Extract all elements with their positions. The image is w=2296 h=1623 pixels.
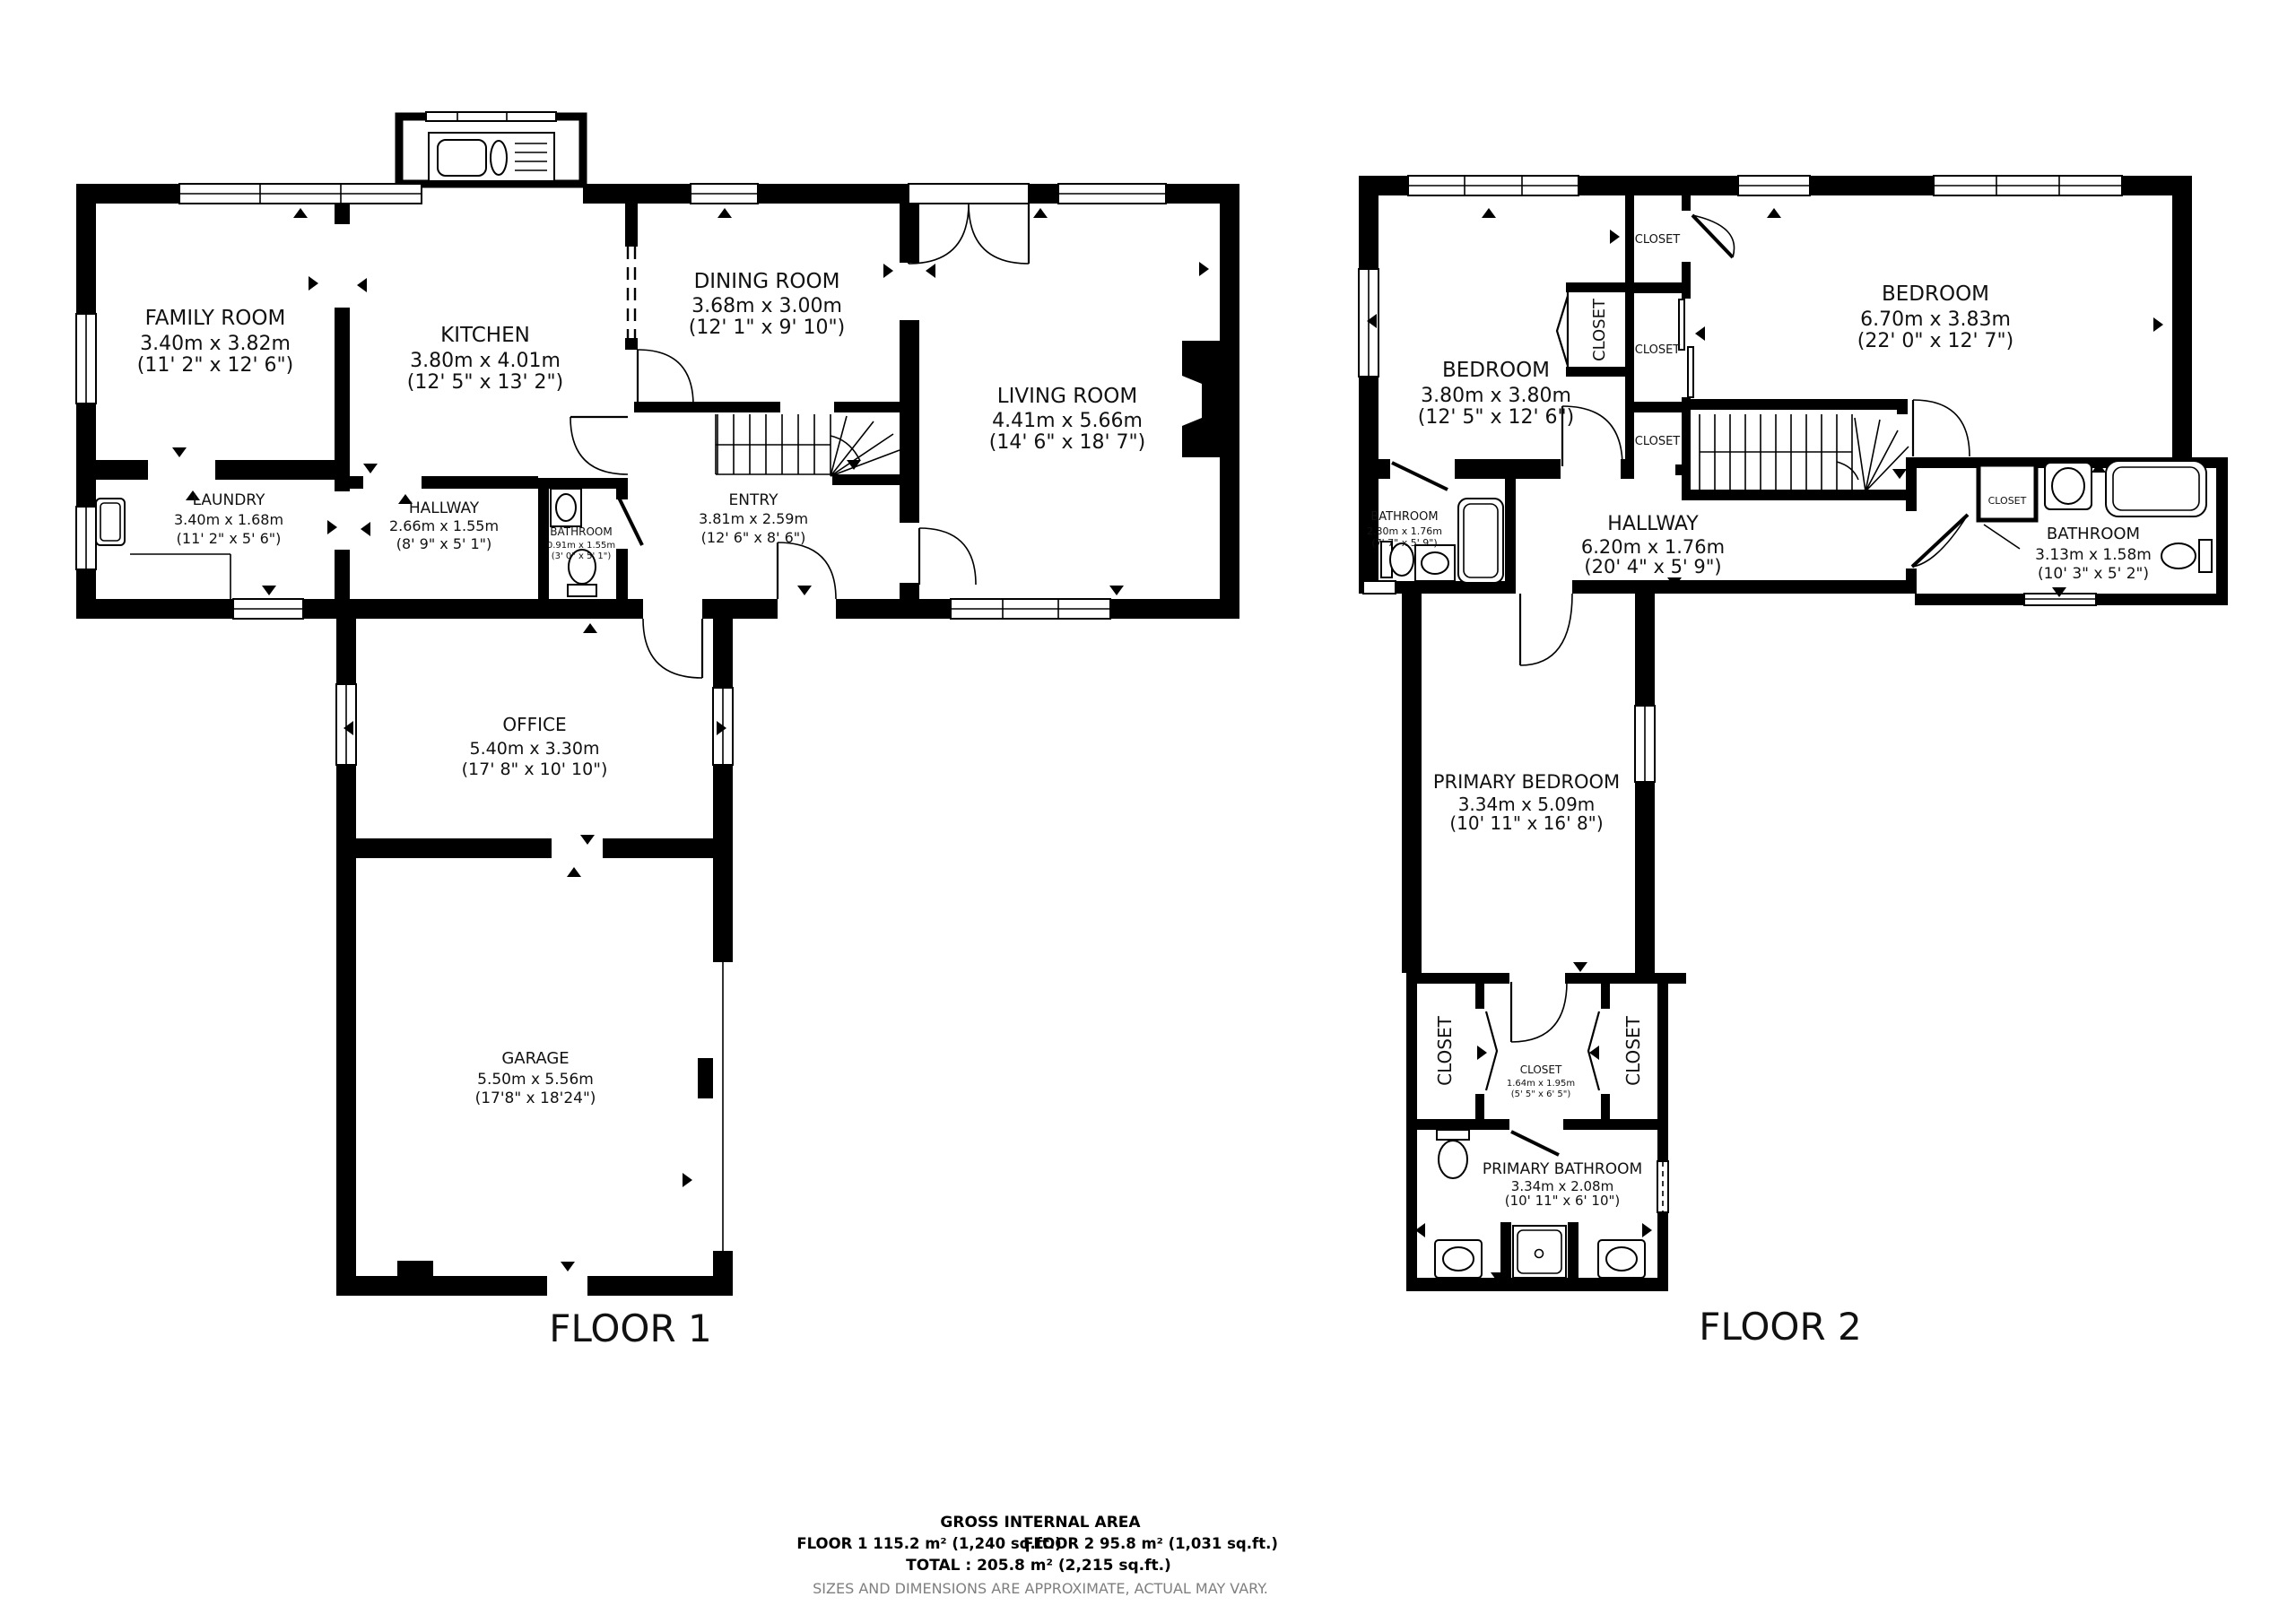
room-name: FAMILY ROOM xyxy=(145,307,286,330)
office-door-opening xyxy=(643,599,702,619)
room-metric: 6.20m x 1.76m xyxy=(1581,536,1725,558)
window-icon xyxy=(1738,176,1810,195)
sliding-door-icon xyxy=(1679,299,1693,397)
window-icon xyxy=(1657,1161,1668,1212)
bathtub-icon xyxy=(2106,461,2206,516)
room-imperial: (7' 7" x 5' 9") xyxy=(1371,537,1437,549)
room-imperial: (5' 5" x 6' 5") xyxy=(1511,1089,1571,1099)
stairs-icon xyxy=(716,414,900,476)
dashed-opening xyxy=(628,247,635,338)
sink-icon xyxy=(1598,1240,1645,1278)
floor2-walls xyxy=(1359,176,2228,1291)
room-name: PRIMARY BEDROOM xyxy=(1433,771,1620,793)
room-imperial: (8' 9" x 5' 1") xyxy=(396,535,492,552)
toilet-icon xyxy=(1437,1130,1469,1178)
door-leaf-icon xyxy=(1392,463,1448,490)
door-swing-icon xyxy=(919,528,976,585)
door-swing-icon xyxy=(1692,215,1735,257)
closet-box xyxy=(1979,464,2036,520)
garage-rear-opening xyxy=(547,1276,587,1296)
door-leaf-icon xyxy=(1511,1132,1559,1155)
door-swing-icon xyxy=(1520,594,1572,665)
washer-icon xyxy=(96,499,125,545)
floor1-title: FLOOR 1 xyxy=(549,1306,711,1350)
room-metric: 0.91m x 1.55m xyxy=(547,541,615,551)
room-name: BEDROOM xyxy=(1442,359,1550,382)
window-icon xyxy=(1408,176,1578,195)
room-metric: 3.13m x 1.58m xyxy=(2035,546,2152,564)
room-name: LAUNDRY xyxy=(193,491,265,509)
room-metric: 4.41m x 5.66m xyxy=(992,410,1143,432)
floor2-title: FLOOR 2 xyxy=(1699,1305,1861,1349)
room-name: BEDROOM xyxy=(1882,282,1989,306)
room-metric: 5.50m x 5.56m xyxy=(477,1071,594,1089)
room-imperial: (10' 3" x 5' 2") xyxy=(2038,565,2149,583)
closet-label: CLOSET xyxy=(1635,435,1681,448)
floor1-labels: FAMILY ROOM 3.40m x 3.82m (11' 2" x 12' … xyxy=(137,270,1145,1350)
room-metric: 3.80m x 4.01m xyxy=(410,350,561,372)
closet-label: CLOSET xyxy=(1590,298,1609,361)
room-imperial: (10' 11" x 16' 8") xyxy=(1449,812,1603,834)
kitchen-bay-window xyxy=(399,112,583,184)
window-icon xyxy=(1934,176,2122,195)
window-icon xyxy=(76,507,96,569)
room-name: HALLWAY xyxy=(409,499,480,517)
room-metric: 3.80m x 3.80m xyxy=(1421,385,1571,407)
room-name: CLOSET xyxy=(1520,1063,1562,1076)
room-name: KITCHEN xyxy=(440,324,530,347)
room-name: BATHROOM xyxy=(550,525,612,538)
closet-label: CLOSET xyxy=(1988,495,2027,507)
room-name: OFFICE xyxy=(502,714,566,735)
room-imperial: (12' 5" x 13' 2") xyxy=(407,371,563,394)
floorplan-page: FAMILY ROOM 3.40m x 3.82m (11' 2" x 12' … xyxy=(0,0,2296,1623)
footer-floor1-area: FLOOR 1 115.2 m² (1,240 sq.ft.) xyxy=(796,1535,1061,1552)
room-imperial: (12' 1" x 9' 10") xyxy=(689,317,845,339)
room-imperial: (12' 6" x 8' 6") xyxy=(701,529,806,546)
window-icon xyxy=(233,599,303,619)
room-name: GARAGE xyxy=(501,1049,569,1068)
laundry-step-outline xyxy=(130,554,230,599)
room-name: HALLWAY xyxy=(1607,513,1699,535)
office-garage-opening xyxy=(552,838,603,858)
room-metric: 6.70m x 3.83m xyxy=(1860,308,2011,331)
window-icon xyxy=(951,599,1110,619)
room-imperial: (17'8" x 18'24") xyxy=(475,1089,596,1107)
door-leaf-icon xyxy=(1912,515,1968,567)
stairs-icon xyxy=(1700,414,1909,491)
room-name: LIVING ROOM xyxy=(997,385,1138,408)
bifold-door-icon xyxy=(1557,292,1568,367)
window-icon xyxy=(1058,184,1166,204)
closet-label: CLOSET xyxy=(1635,343,1681,357)
room-metric: 3.40m x 3.82m xyxy=(140,333,291,355)
floor1-openings xyxy=(547,599,836,1296)
footer-title: GROSS INTERNAL AREA xyxy=(940,1514,1141,1532)
room-name: DINING ROOM xyxy=(694,270,840,293)
toilet-icon xyxy=(2161,540,2212,572)
sink-icon xyxy=(2045,463,2092,509)
room-imperial: (20' 4" x 5' 9") xyxy=(1584,556,1721,577)
kitchen-sink-icon xyxy=(429,133,554,181)
shower-icon xyxy=(1513,1226,1566,1278)
floor1-plan: FAMILY ROOM 3.40m x 3.82m (11' 2" x 12' … xyxy=(76,112,1239,1350)
window-icon xyxy=(1635,706,1655,782)
closet-label: CLOSET xyxy=(1434,1015,1456,1085)
room-name: BATHROOM xyxy=(1370,510,1438,524)
room-imperial: (11' 2" x 12' 6") xyxy=(137,354,293,377)
room-name: ENTRY xyxy=(729,491,779,509)
room-imperial: (10' 11" x 6' 10") xyxy=(1505,1193,1621,1209)
door-swing-icon xyxy=(638,350,693,405)
closet-label: CLOSET xyxy=(1622,1015,1644,1085)
room-imperial: (11' 2" x 5' 6") xyxy=(177,530,282,547)
room-name: BATHROOM xyxy=(2047,525,2140,543)
room-imperial: (14' 6" x 18' 7") xyxy=(989,431,1145,454)
window-icon xyxy=(179,184,422,204)
room-metric: 2.30m x 1.76m xyxy=(1367,525,1442,537)
window-icon xyxy=(426,112,556,121)
room-metric: 3.40m x 1.68m xyxy=(174,511,283,528)
room-imperial: (17' 8" x 10' 10") xyxy=(462,759,608,779)
french-door-icon xyxy=(909,184,1029,264)
room-metric: 1.64m x 1.95m xyxy=(1507,1079,1575,1089)
floorplan-canvas: FAMILY ROOM 3.40m x 3.82m (11' 2" x 12' … xyxy=(0,0,2296,1623)
door-swing-icon xyxy=(570,417,628,474)
footer: GROSS INTERNAL AREA FLOOR 1 115.2 m² (1,… xyxy=(796,1514,1278,1597)
sink-icon xyxy=(551,489,581,526)
door-leaf-icon xyxy=(619,498,642,545)
room-metric: 2.66m x 1.55m xyxy=(389,517,499,534)
door-swing-icon xyxy=(643,619,702,678)
room-metric: 5.40m x 3.30m xyxy=(470,739,600,759)
sink-icon xyxy=(1415,545,1455,581)
room-metric: 3.68m x 3.00m xyxy=(691,295,842,317)
room-imperial: (22' 0" x 12' 7") xyxy=(1857,330,2013,352)
floor2-doors xyxy=(1392,215,2020,1155)
fireplace-icon xyxy=(1182,376,1202,426)
bifold-door-icon xyxy=(1486,1011,1497,1090)
footer-floor2-area: FLOOR 2 95.8 m² (1,031 sq.ft.) xyxy=(1023,1535,1278,1552)
closet-label: CLOSET xyxy=(1635,233,1681,247)
door-swing-icon xyxy=(1913,400,1970,456)
door-leaf-icon xyxy=(1984,525,2020,549)
room-imperial: (12' 5" x 12' 6") xyxy=(1418,406,1574,429)
window-icon xyxy=(76,314,96,404)
room-metric: 3.81m x 2.59m xyxy=(699,510,808,527)
room-imperial: (3' 0" x 5' 1") xyxy=(552,551,612,561)
footer-total: TOTAL : 205.8 m² (2,215 sq.ft.) xyxy=(906,1557,1171,1575)
sink-icon xyxy=(1435,1240,1482,1278)
floor2-plan: BEDROOM 3.80m x 3.80m (12' 5" x 12' 6") … xyxy=(1359,176,2228,1349)
window-icon xyxy=(1363,581,1396,594)
window-icon xyxy=(691,184,758,204)
door-swing-icon xyxy=(1511,982,1567,1042)
room-name: PRIMARY BATHROOM xyxy=(1483,1160,1642,1178)
footer-note: SIZES AND DIMENSIONS ARE APPROXIMATE, AC… xyxy=(813,1580,1268,1597)
bathtub-icon xyxy=(1458,499,1503,583)
front-door-opening xyxy=(778,599,836,619)
